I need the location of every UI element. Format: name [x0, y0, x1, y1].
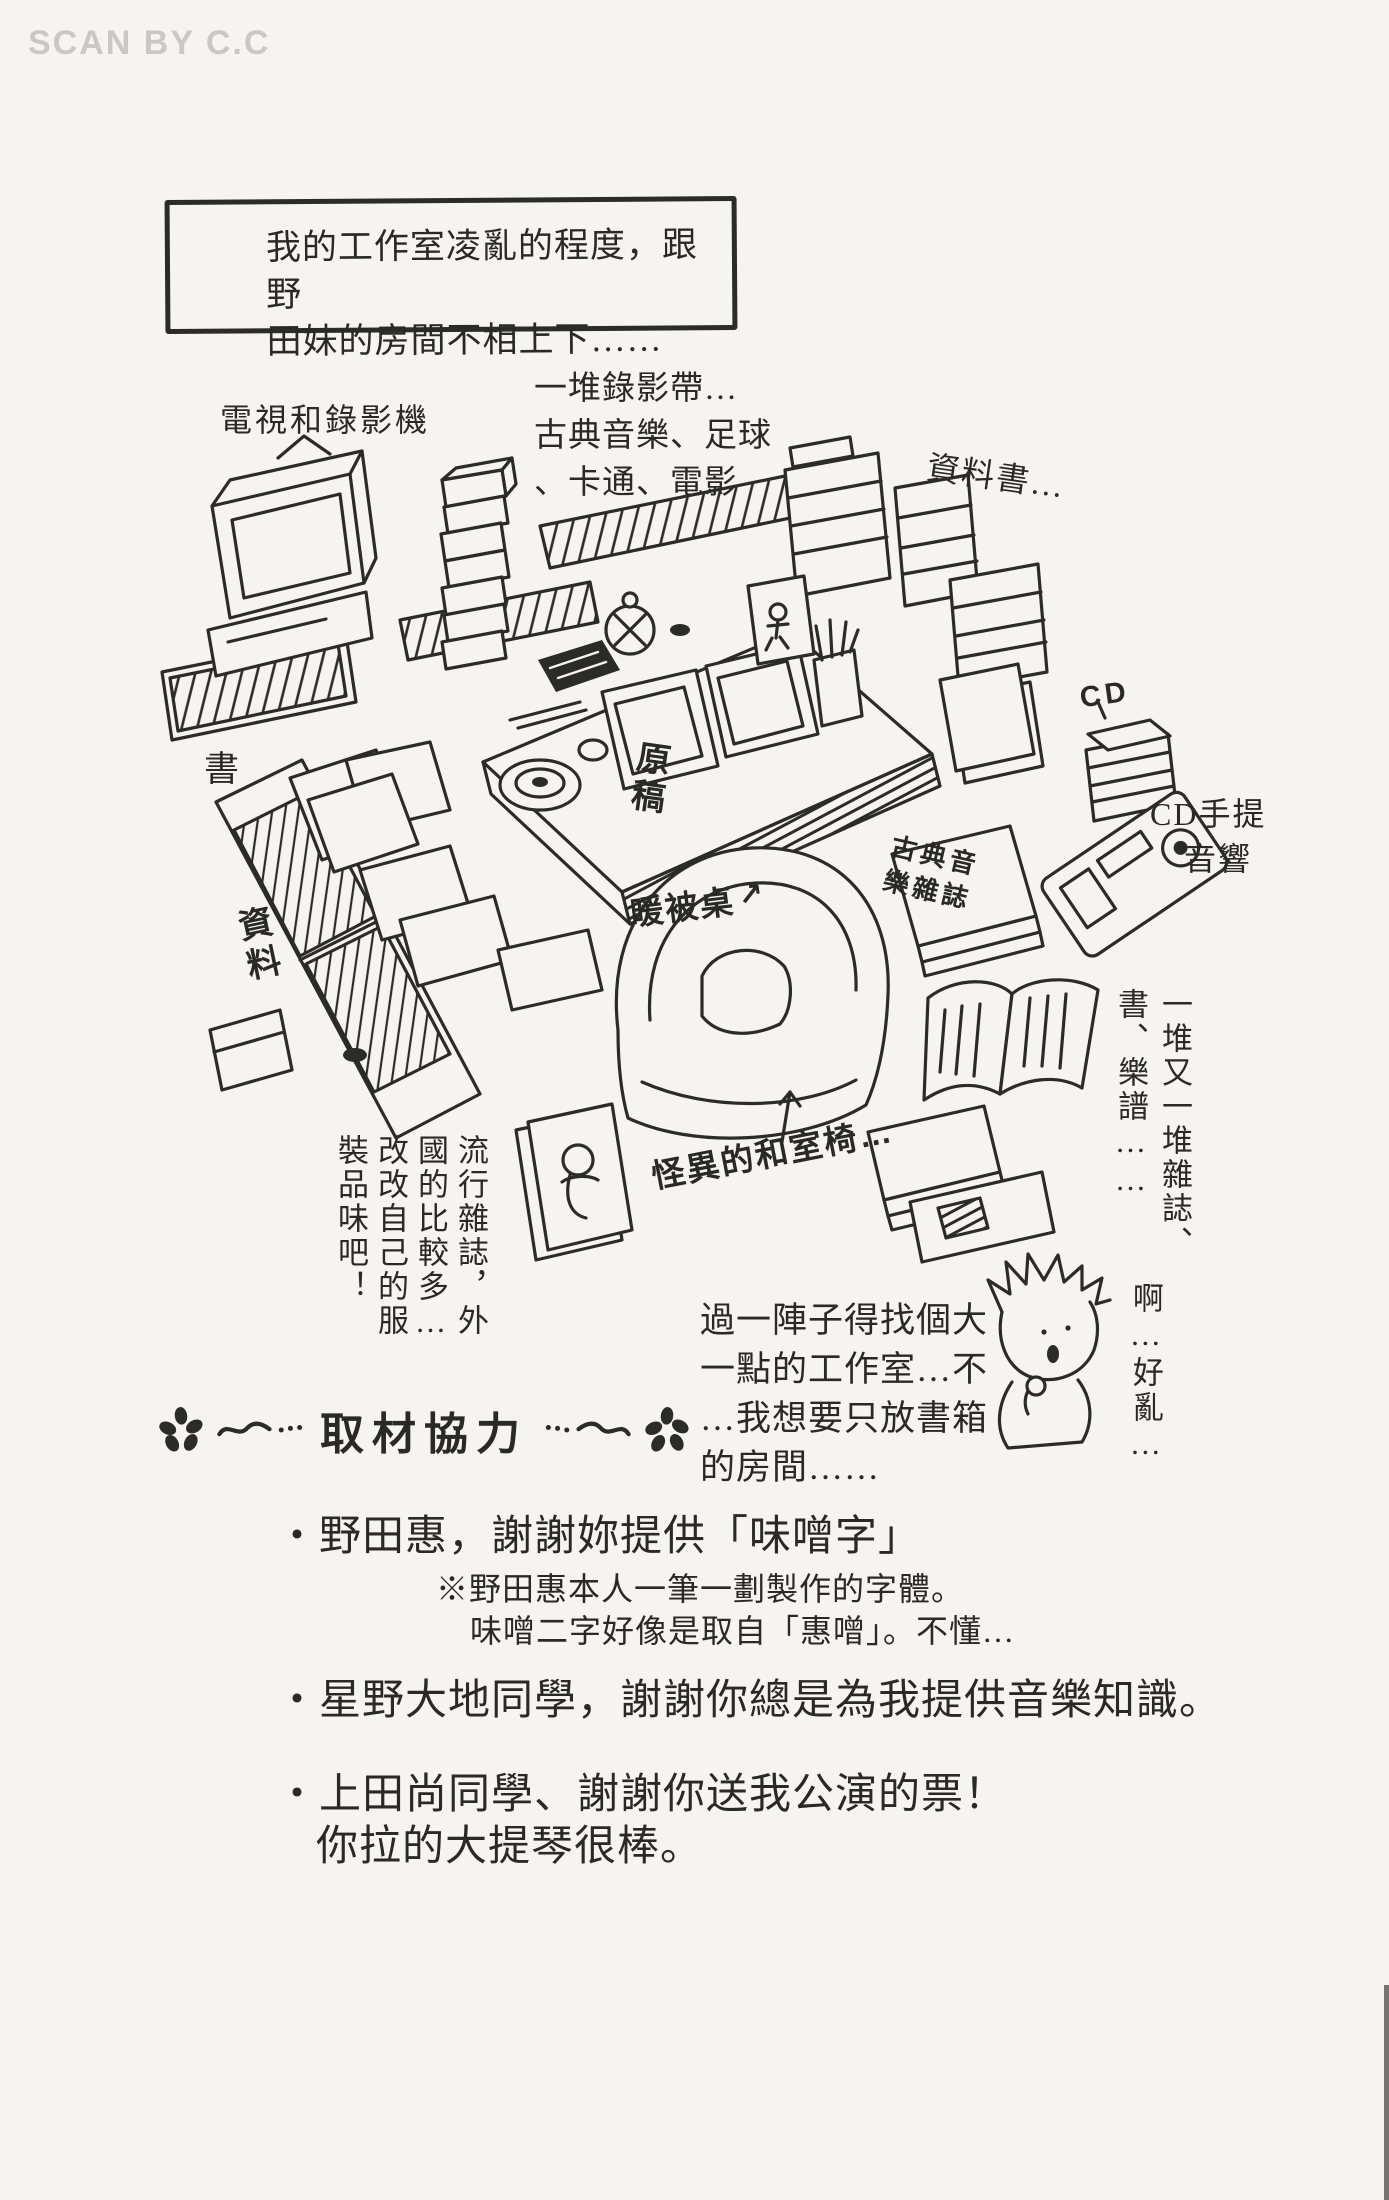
videotapes-label-line2: 古典音樂、足球 — [534, 413, 772, 460]
videotapes-label-line1: 一堆錄影帶… — [534, 366, 772, 413]
bigger-studio-label: 過一陣子得找個大 一點的工作室…不 …我想要只放書箱 的房間…… — [700, 1296, 988, 1492]
piles-label: 一堆又一堆雜誌、書、樂譜…… — [1108, 988, 1196, 1266]
tv-label: 電視和錄影機 — [220, 399, 430, 442]
loose-papers-right-illustration — [940, 664, 1043, 783]
scan-edge-artifact — [1384, 1985, 1389, 2200]
credit-item-3-line-2: 你拉的大提琴很棒。 — [316, 1812, 703, 1873]
credits-header-text: 取材協力 — [320, 1398, 528, 1462]
chibi-author-illustration — [988, 1254, 1110, 1448]
squiggle-doodle-icon — [540, 1415, 632, 1445]
kotatsu-label-text: 暖被桌 — [628, 883, 737, 933]
squiggle-doodle-icon — [216, 1415, 308, 1445]
flower-doodle-icon — [158, 1404, 204, 1456]
fashion-magazines-label: 流行雜誌，外國的比較多…改改自己的服裝品味吧！ — [330, 1134, 490, 1344]
cd-stereo-label-line2: 音響 — [1150, 837, 1266, 882]
bigger-studio-line4: 的房間…… — [700, 1443, 988, 1492]
cd-stereo-label: CD手提 音響 — [1150, 792, 1266, 882]
bigger-studio-line2: 一點的工作室…不 — [700, 1345, 988, 1394]
kotatsu-arrow: ↗ — [736, 877, 767, 913]
credit-item-1-note-2: 味噌二字好像是取自「惠噌」。不懂… — [470, 1606, 1015, 1652]
videotapes-label-line3: 、卡通、電影 — [534, 460, 772, 507]
magazine-piles-bottom-illustration — [868, 1106, 1054, 1262]
speech-line-1: 我的工作室凌亂的程度，跟野 — [266, 221, 733, 318]
author-speech-box: 我的工作室凌亂的程度，跟野 田妹的房間不相上下…… — [165, 196, 738, 334]
cd-label: CD — [1078, 673, 1133, 719]
videotapes-label: 一堆錄影帶… 古典音樂、足球 、卡通、電影 — [534, 366, 772, 507]
bigger-studio-line1: 過一陣子得找個大 — [700, 1296, 988, 1345]
open-magazine-illustration — [924, 980, 1098, 1100]
credit-item-1-note-1: ※野田惠本人一筆一劃製作的字體。 — [436, 1564, 964, 1610]
fashion-magazine-illustration — [516, 1104, 632, 1260]
flower-doodle-icon — [644, 1404, 690, 1456]
credits-header: 取材協力 — [158, 1398, 690, 1462]
messy-label: 啊…好亂… — [1124, 1282, 1166, 1482]
bigger-studio-line3: …我想要只放書箱 — [700, 1394, 988, 1443]
books-label: 書 — [204, 746, 239, 793]
credit-item-2: ・星野大地同學，謝謝你總是為我提供音樂知識。 — [276, 1666, 1222, 1727]
scan-watermark: SCAN BY C.C — [28, 24, 270, 63]
cd-stereo-label-line1: CD手提 — [1150, 792, 1266, 837]
manga-scan-page: SCAN BY C.C 我的工作室凌亂的程度，跟野 田妹的房間不相上下…… — [0, 0, 1389, 2200]
credit-item-1: ・野田惠，謝謝妳提供「味噌字」 — [276, 1502, 921, 1563]
tv-illustration — [212, 451, 376, 618]
